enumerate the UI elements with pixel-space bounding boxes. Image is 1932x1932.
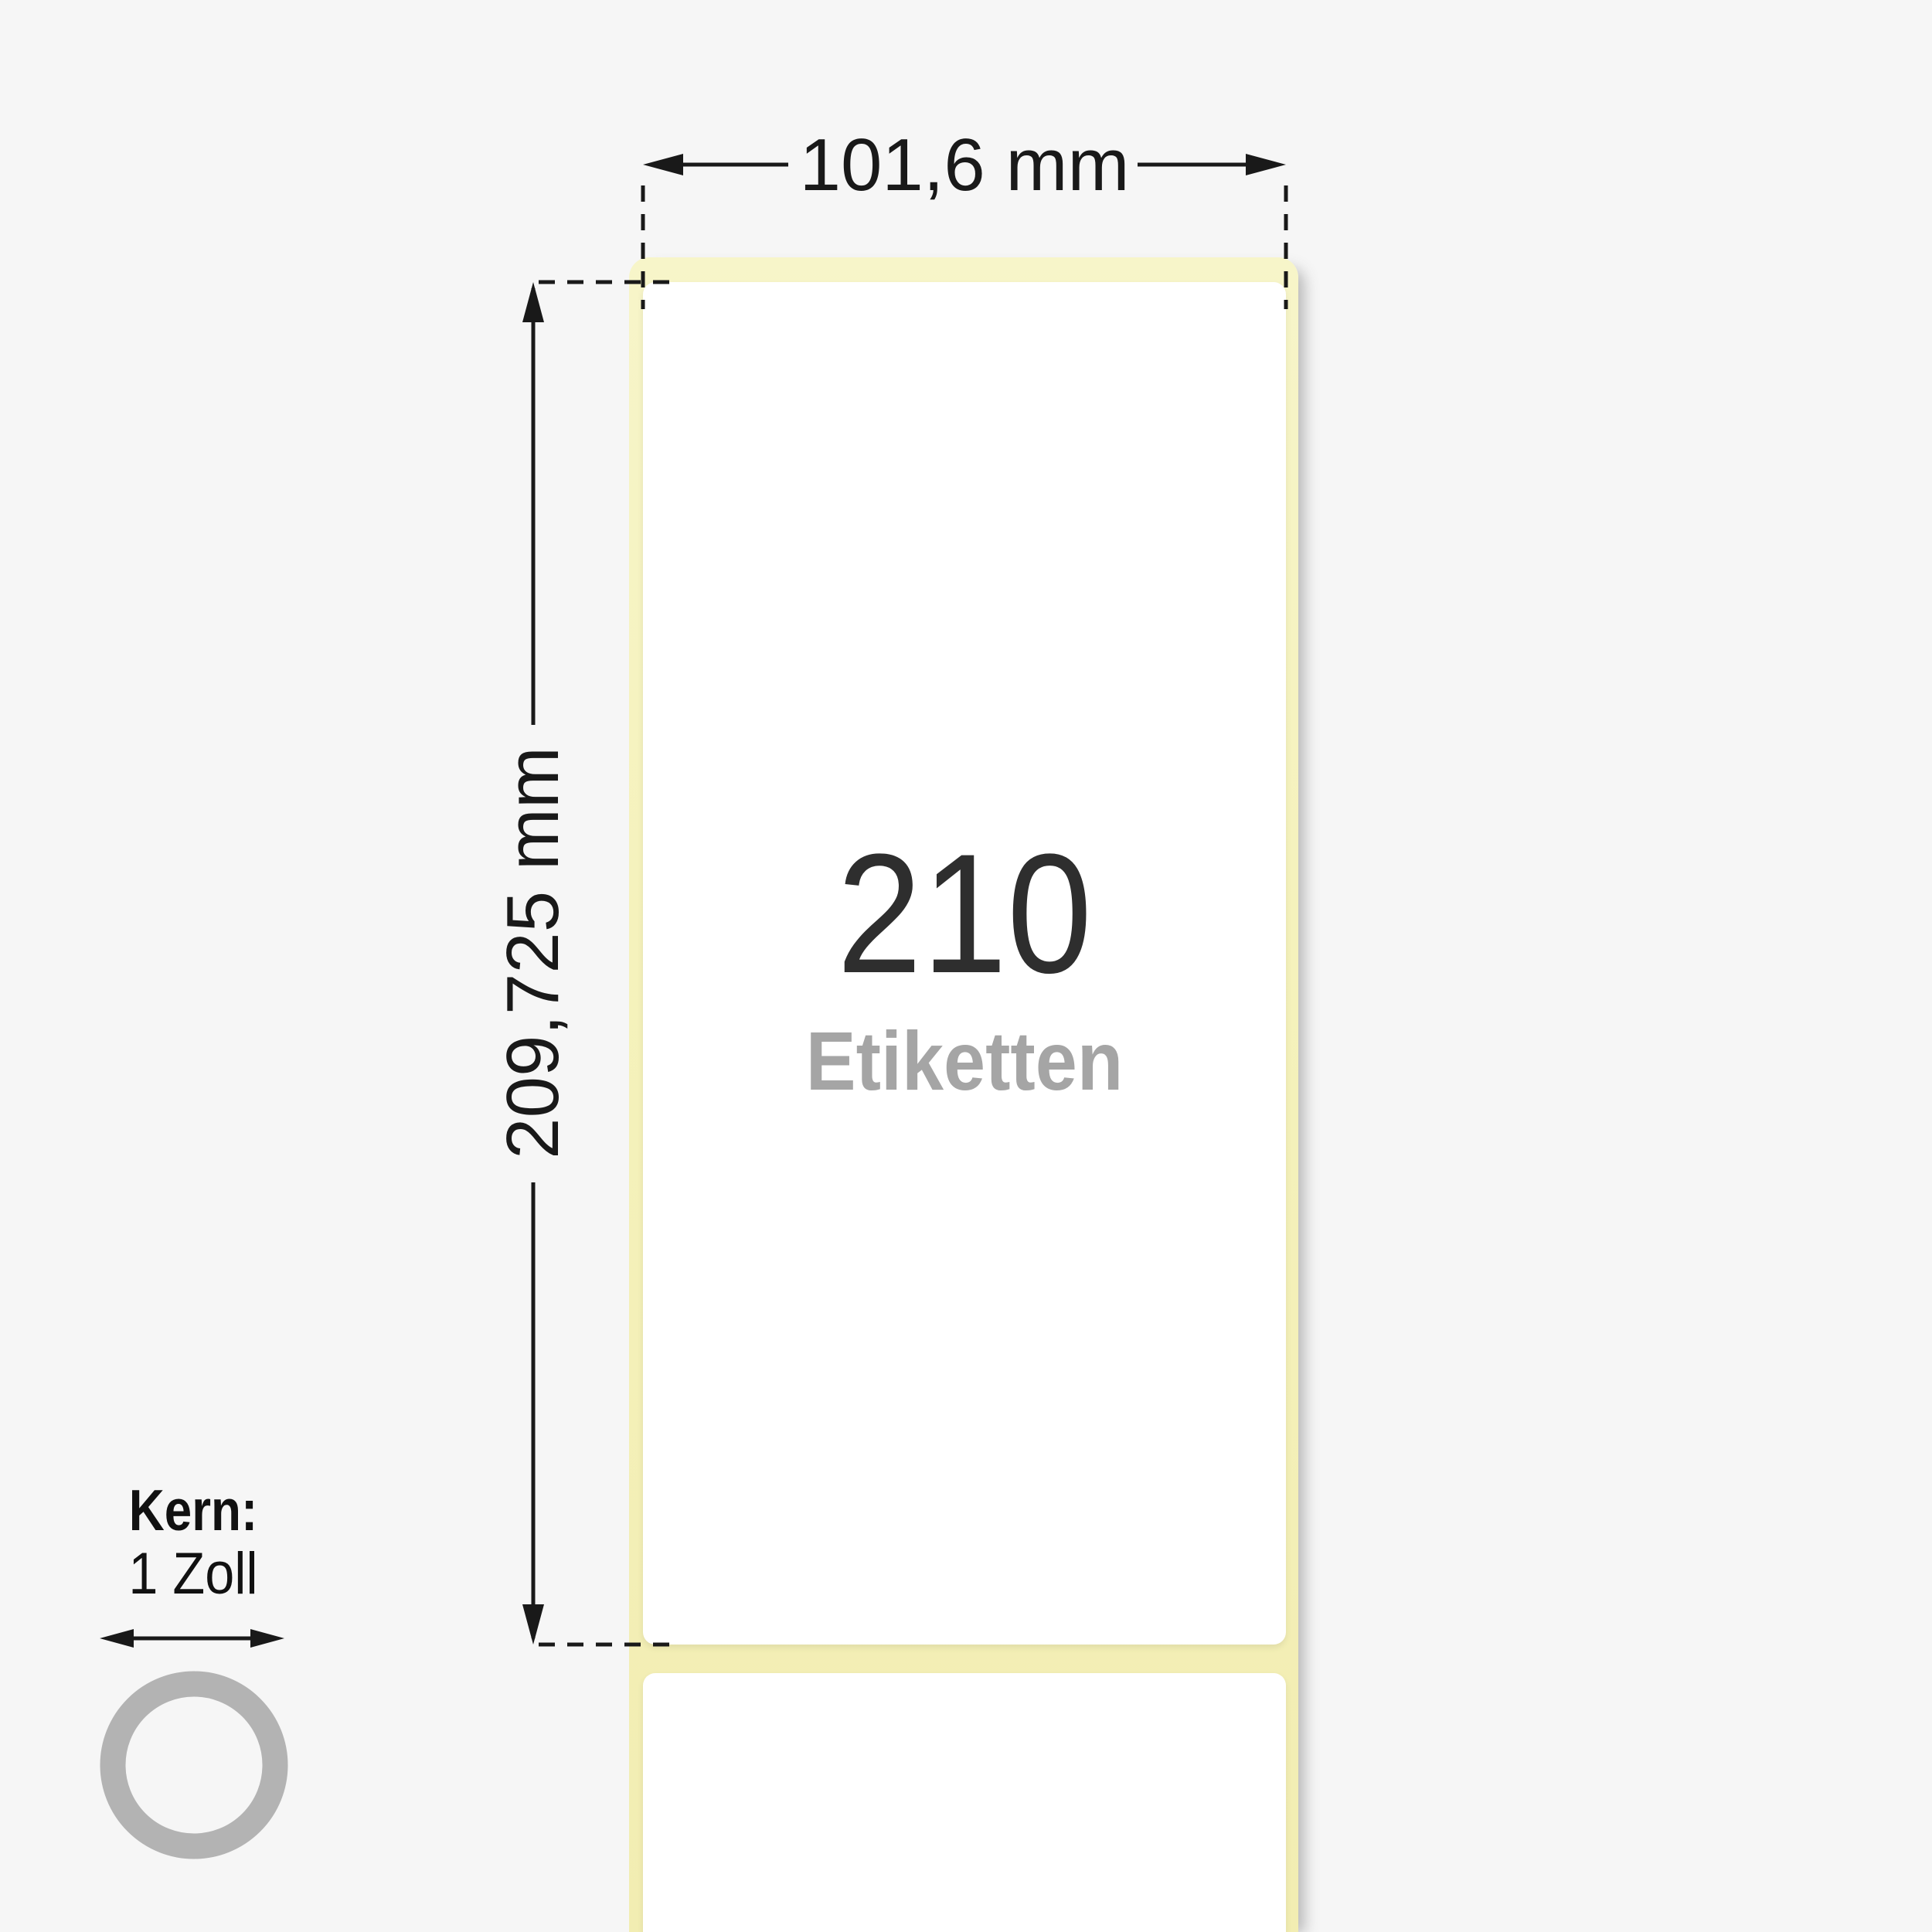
core-value: 1 Zoll [75, 1545, 311, 1604]
core-arrow-right-icon [250, 1629, 284, 1648]
dimension-annotations [0, 0, 1932, 1932]
extension-lines [539, 185, 1286, 1645]
core-label: Kern: [82, 1481, 305, 1539]
core-ring-icon [113, 1684, 275, 1846]
height-dimension-label: 209,725 mm [496, 747, 570, 1159]
height-arrow-up-icon [522, 282, 544, 322]
label-roll-diagram: 210 Etiketten [0, 0, 1932, 1932]
core-arrow-left-icon [100, 1629, 134, 1648]
width-dimension-label: 101,6 mm [643, 128, 1286, 202]
height-arrow-down-icon [522, 1604, 544, 1645]
